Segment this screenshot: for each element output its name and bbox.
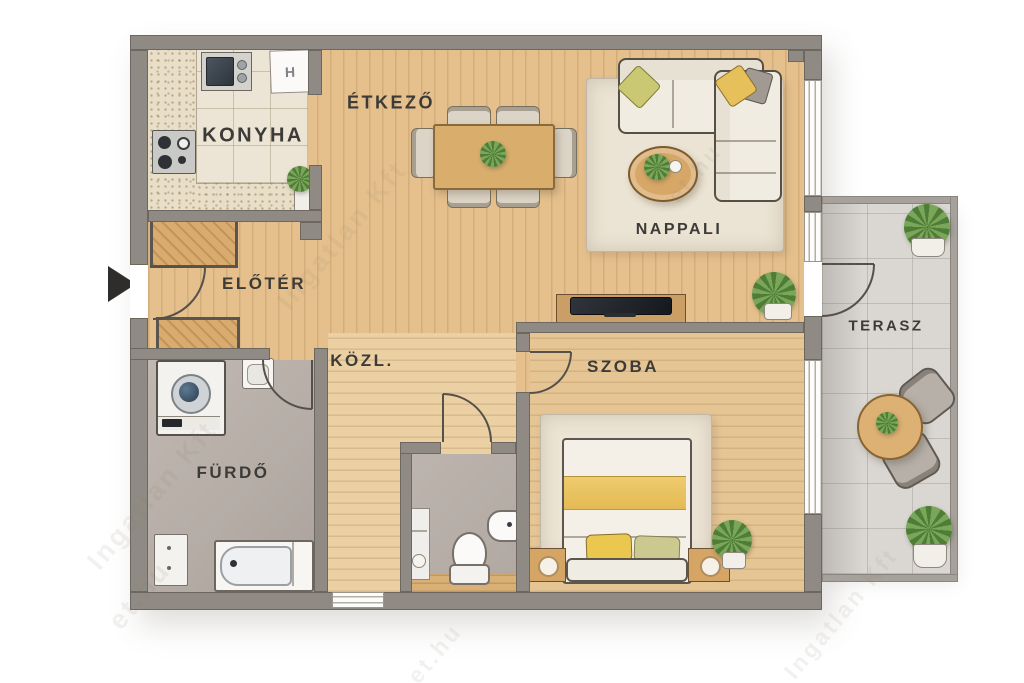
terrace-door-opening <box>804 262 822 316</box>
wall-wc-top-b <box>491 442 516 454</box>
nightstand-lamp <box>538 556 559 577</box>
cabinet-knob <box>167 546 171 550</box>
wall-living-bedroom-divider <box>516 322 804 333</box>
wall-wc-top-a <box>400 442 441 454</box>
terrace-plant-top-pot <box>911 238 945 257</box>
washing-machine-drum <box>179 382 199 402</box>
wall-bedroom-left <box>516 392 530 592</box>
window-living <box>804 80 822 196</box>
sofa-cushion-line <box>716 172 776 174</box>
wall-right-top <box>804 50 822 80</box>
bed-headboard <box>566 558 688 582</box>
terrace-building-shadow <box>822 204 864 574</box>
stove-burner <box>158 136 171 149</box>
room-label-konyha: KONYHA <box>202 125 304 148</box>
oven-window <box>206 57 234 86</box>
room-label-szoba: SZOBA <box>587 357 659 377</box>
wall-bottom <box>130 592 822 610</box>
wall-top <box>130 35 822 50</box>
room-label-etkezo: ÉTKEZŐ <box>347 93 435 114</box>
wall-right-lower <box>804 514 822 592</box>
wall-bathroom-right <box>314 348 328 592</box>
wall-bathroom-top <box>130 348 270 360</box>
sofa-cushion-line <box>672 80 674 128</box>
toilet-tank <box>449 564 490 585</box>
bathtub-drain <box>230 560 237 567</box>
wall-right-mid1 <box>804 196 822 212</box>
hall-wardrobe <box>150 218 238 268</box>
terrace-table-plant <box>876 412 898 434</box>
window-living-2 <box>804 212 822 262</box>
window-bedroom <box>804 360 822 514</box>
room-label-furdo: FÜRDŐ <box>197 463 270 483</box>
coffee-table-plant <box>644 154 670 180</box>
terrace-wall-top <box>822 196 958 204</box>
wall-kitchen-bottom <box>148 210 322 222</box>
bathtub-shelf-line <box>292 542 294 586</box>
wc-sink <box>487 510 518 542</box>
stove-burner <box>177 137 190 150</box>
wall-right-mid2 <box>804 316 822 360</box>
nightstand-lamp <box>700 556 721 577</box>
tv-stand <box>604 313 636 317</box>
living-plant-pot <box>764 303 792 320</box>
wall-kitchen-stub <box>309 165 322 210</box>
wall-bedroom-left-stub <box>516 333 530 352</box>
entrance-door-opening <box>130 265 148 318</box>
wall-wc-left <box>400 442 412 592</box>
fridge-letter: H <box>285 63 296 79</box>
terrace-plant-bottom-pot <box>913 544 947 568</box>
stove-burner <box>178 156 186 164</box>
wall-right-corner-step <box>788 50 804 62</box>
bathroom-sink-basin <box>247 364 269 385</box>
oven-knob <box>237 60 247 70</box>
wall-left-upper <box>130 50 148 265</box>
stove-burner <box>158 155 172 169</box>
bed-blanket-stripe <box>564 476 686 510</box>
stove <box>152 130 196 174</box>
room-label-terasz: TERASZ <box>849 318 924 335</box>
window-corridor <box>332 592 384 608</box>
wc-bin <box>412 554 426 568</box>
sofa-cushion-line <box>716 140 776 142</box>
oven-knob <box>237 73 247 83</box>
wall-kitchen-fridge-side <box>308 50 322 95</box>
wc-sink-tap <box>507 522 512 527</box>
dining-table-plant <box>480 141 506 167</box>
room-label-kozl: KÖZL. <box>330 351 394 371</box>
washing-machine-display <box>162 419 182 427</box>
floor-plan-canvas: H <box>0 0 1024 683</box>
room-label-nappali: NAPPALI <box>636 221 723 239</box>
fridge: H <box>269 49 310 93</box>
watermark-text: et.hu <box>402 618 468 683</box>
bedroom-plant-pot <box>722 552 746 569</box>
